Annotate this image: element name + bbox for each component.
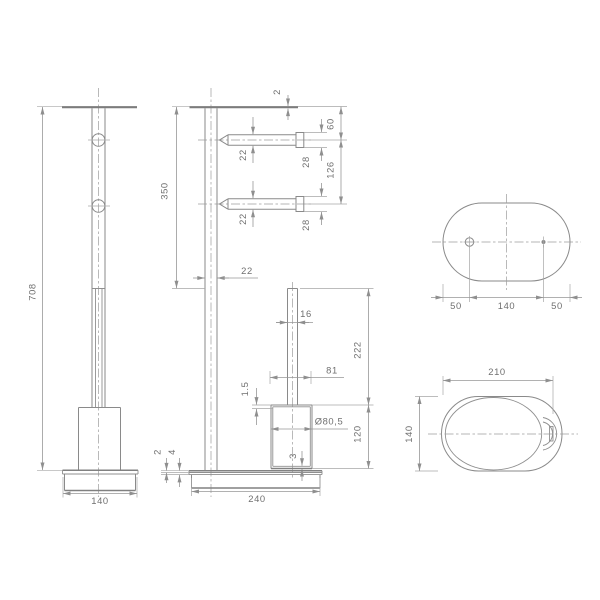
dim-hole-spacing: 140 [498, 300, 515, 311]
dim-cup-rim-width: 81 [326, 365, 338, 376]
base-top-view: 50 140 50 [431, 194, 582, 311]
dim-cup-base-thickness: 3 [287, 453, 298, 459]
dim-upper-post-length: 350 [159, 182, 170, 199]
tray-top-view: 210 140 [403, 366, 578, 471]
dim-cup-wall-thickness: 1.5 [239, 382, 250, 397]
technical-drawing-canvas: 708 140 2 22 28 22 [0, 0, 600, 600]
dim-tray-width: 210 [488, 366, 505, 377]
dim-top-plate-thickness: 2 [271, 89, 282, 95]
dim-arm2-end-diameter: 28 [300, 219, 311, 231]
dim-top-to-arm: 60 [325, 118, 336, 130]
dim-overall-height: 708 [27, 283, 38, 300]
freestanding-toilet-butler-drawing: 708 140 2 22 28 22 [0, 0, 600, 600]
dim-base-skin-thickness: 2 [152, 449, 163, 455]
dim-holder-height: 222 [352, 341, 363, 358]
dim-arm1-end-diameter: 28 [300, 156, 311, 168]
side-view: 708 140 [27, 88, 139, 506]
dim-cup-diameter: Ø80,5 [315, 416, 344, 427]
dim-arm-spacing: 126 [325, 161, 336, 178]
dim-holder-pole-diameter: 16 [300, 308, 312, 319]
dim-hole-left-offset: 50 [450, 300, 462, 311]
dim-arm1-diameter: 22 [237, 149, 248, 161]
dim-post-diameter: 22 [241, 265, 253, 276]
dim-tray-depth: 140 [403, 425, 414, 442]
dim-base-length: 240 [248, 493, 265, 504]
dim-base-plate-thickness: 4 [166, 449, 177, 455]
dim-base-width: 140 [91, 495, 108, 506]
front-view: 2 22 28 22 28 60 126 [152, 88, 374, 504]
dim-arm2-diameter: 22 [237, 213, 248, 225]
dim-cup-height: 120 [352, 425, 363, 442]
dim-hole-right-offset: 50 [551, 300, 563, 311]
